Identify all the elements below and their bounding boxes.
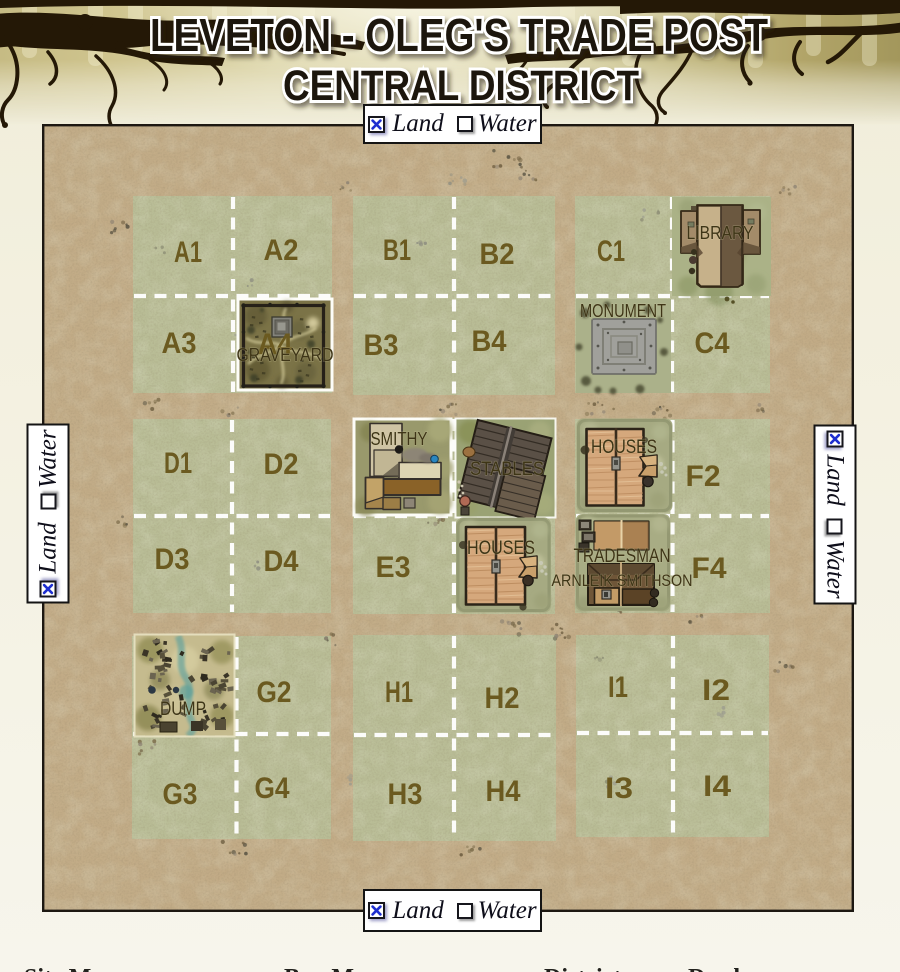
svg-text:G4: G4 <box>255 772 290 805</box>
svg-text:B2: B2 <box>480 238 515 271</box>
svg-text:B1: B1 <box>383 234 411 267</box>
svg-text:B3: B3 <box>364 329 399 362</box>
svg-text:A3: A3 <box>162 327 197 360</box>
svg-text:LEVETON - OLEG'S TRADE POST: LEVETON - OLEG'S TRADE POST <box>150 9 768 61</box>
svg-text:DUMP: DUMP <box>160 699 206 720</box>
svg-text:I3: I3 <box>605 772 633 805</box>
svg-text:TRADESMAN: TRADESMAN <box>574 546 671 567</box>
svg-text:H1: H1 <box>385 676 413 709</box>
svg-text:HOUSES: HOUSES <box>591 437 657 458</box>
svg-text:H4: H4 <box>486 775 521 808</box>
svg-text:H3: H3 <box>388 778 423 811</box>
svg-text:F4: F4 <box>692 552 727 585</box>
svg-text:E3: E3 <box>376 551 411 584</box>
svg-text:D4: D4 <box>264 545 299 578</box>
svg-text:LIBRARY: LIBRARY <box>687 223 754 243</box>
svg-text:MONUMENT: MONUMENT <box>580 301 666 321</box>
svg-text:GRAVEYARD: GRAVEYARD <box>237 345 334 365</box>
svg-text:G3: G3 <box>163 778 198 811</box>
svg-text:A2: A2 <box>264 234 299 267</box>
svg-text:C1: C1 <box>597 235 625 268</box>
svg-text:SMITHY: SMITHY <box>371 429 428 449</box>
svg-text:I1: I1 <box>608 671 628 704</box>
svg-text:G2: G2 <box>257 676 292 709</box>
svg-text:B4: B4 <box>472 325 507 358</box>
svg-text:D3: D3 <box>155 543 190 576</box>
svg-text:I4: I4 <box>703 770 731 803</box>
svg-text:D1: D1 <box>164 447 192 480</box>
svg-text:A1: A1 <box>174 236 202 269</box>
svg-text:H2: H2 <box>485 682 520 715</box>
svg-text:D2: D2 <box>264 448 299 481</box>
svg-text:STABLES: STABLES <box>470 459 544 480</box>
svg-text:C4: C4 <box>695 327 730 360</box>
svg-text:HOUSES: HOUSES <box>467 538 535 559</box>
svg-text:ARNLEIK SMITHSON: ARNLEIK SMITHSON <box>552 571 693 590</box>
svg-text:CENTRAL DISTRICT: CENTRAL DISTRICT <box>283 62 639 110</box>
svg-text:I2: I2 <box>702 674 730 707</box>
svg-text:F2: F2 <box>686 460 721 493</box>
